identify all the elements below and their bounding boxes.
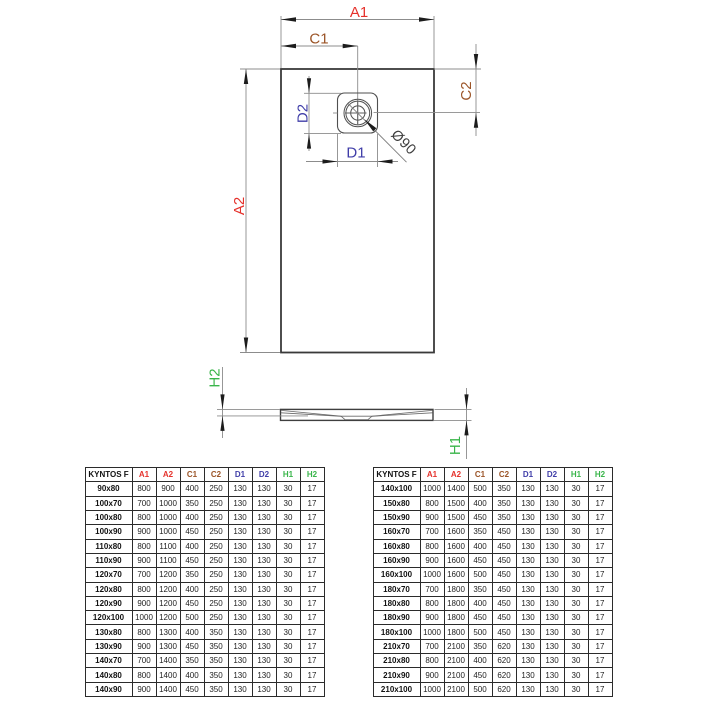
svg-text:D1: D1	[346, 145, 365, 162]
svg-text:H1: H1	[447, 436, 464, 455]
svg-text:D2: D2	[295, 104, 312, 123]
svg-text:A1: A1	[350, 4, 368, 21]
svg-text:Ø90: Ø90	[388, 127, 420, 159]
svg-text:H2: H2	[207, 368, 224, 387]
svg-text:C1: C1	[309, 31, 328, 48]
svg-text:C2: C2	[458, 81, 475, 100]
svg-text:A2: A2	[231, 197, 248, 215]
